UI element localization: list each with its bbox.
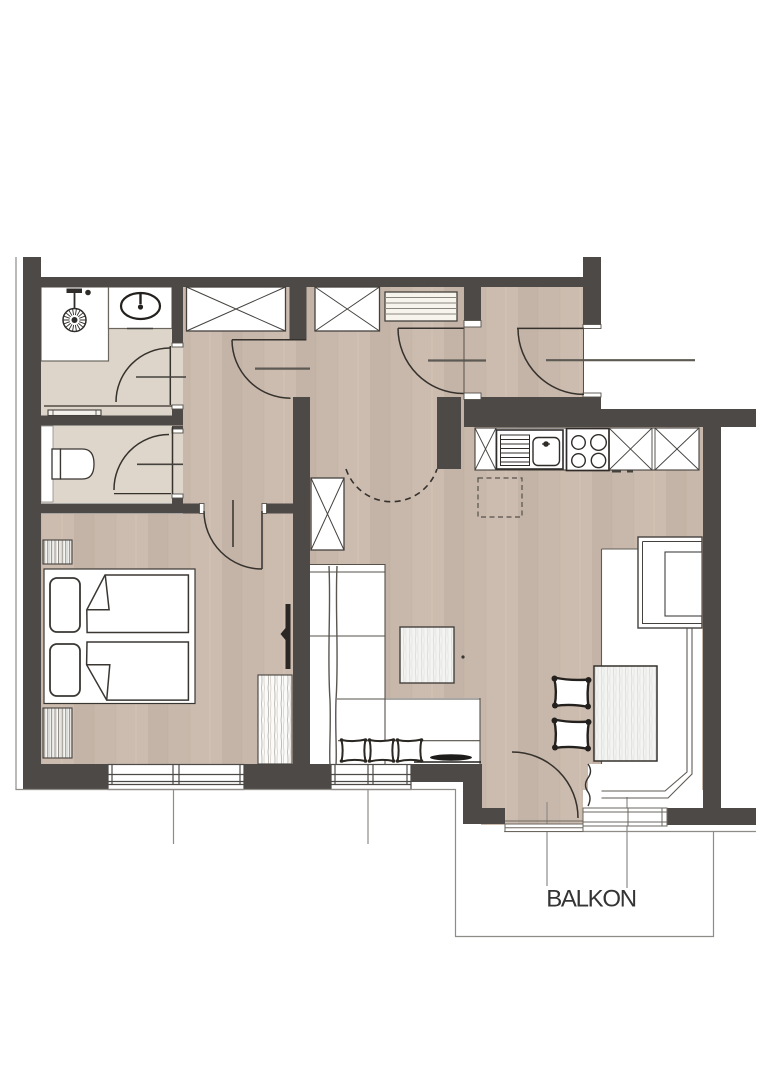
svg-text:BALKON: BALKON [546, 886, 636, 913]
